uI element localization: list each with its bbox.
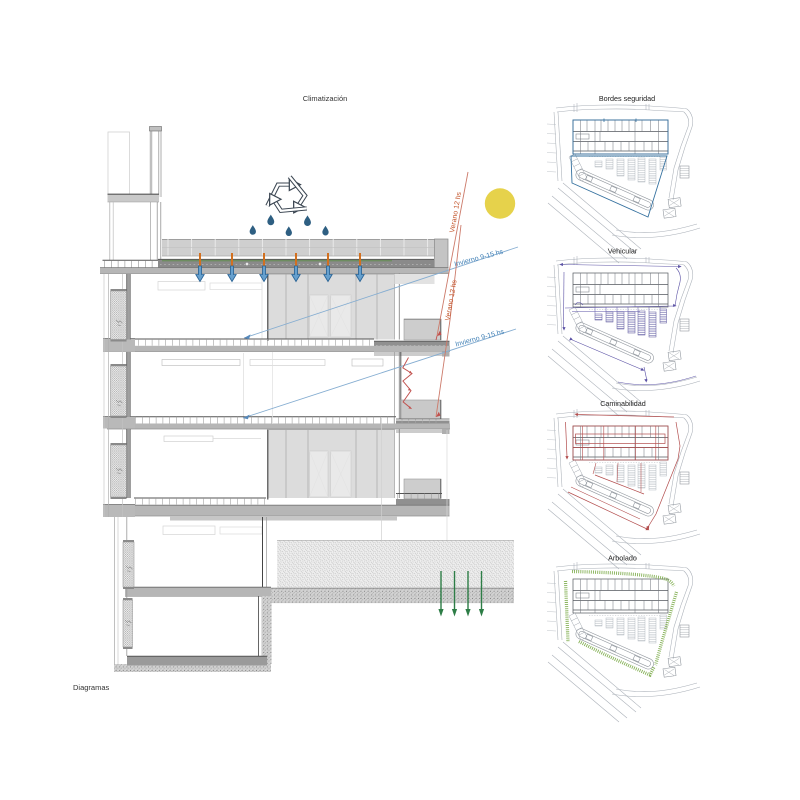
svg-text:Vehicular: Vehicular bbox=[608, 247, 638, 256]
svg-text:Climatización: Climatización bbox=[303, 94, 348, 103]
svg-text:Bordes seguridad: Bordes seguridad bbox=[599, 94, 655, 103]
svg-text:Caminabilidad: Caminabilidad bbox=[600, 399, 646, 408]
svg-text:Diagramas: Diagramas bbox=[73, 683, 110, 692]
svg-text:Arbolado: Arbolado bbox=[608, 554, 637, 563]
